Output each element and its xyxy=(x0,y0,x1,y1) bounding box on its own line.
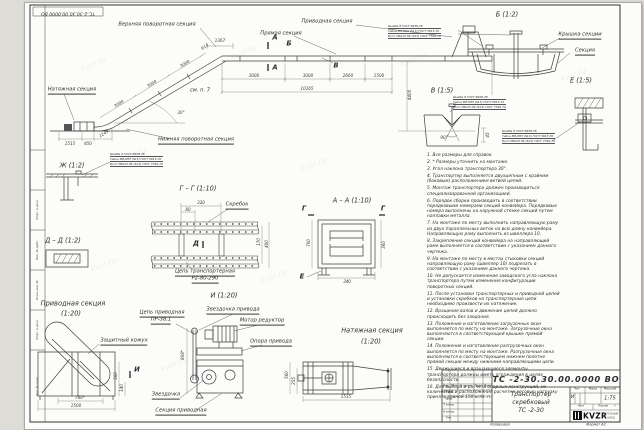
note-item: 7. На монтаже по месту выполнить направл… xyxy=(427,221,560,237)
label-straight-section: Прямая секция xyxy=(260,31,301,36)
note-item: 11. После установки транспортерных и при… xyxy=(427,292,560,308)
label-tension-section: Натяжная секция xyxy=(48,88,96,95)
view-b-title: Б (1:2) xyxy=(496,12,518,19)
view-gg-geometry xyxy=(151,222,259,268)
label-upper-turn-section: Верхняя поворотная секция xyxy=(118,22,195,27)
view-tension-geometry xyxy=(298,362,391,394)
dim-aa-340: 340 xyxy=(343,280,351,284)
view-v-title: В (1:5) xyxy=(431,88,453,95)
dim-incline5: 1367 xyxy=(215,39,225,43)
fastener-bolt: Болт М8х25.58 (S13) ГОСТ 7796-70 xyxy=(502,140,555,144)
view-i-geometry xyxy=(191,326,244,398)
binding-strip xyxy=(30,5,103,422)
sheet-header: Лист xyxy=(578,406,585,409)
strip-label-podp-data-2: Подп. и дата xyxy=(35,320,39,340)
fastener-callout-b: Шайба 8 ГОСТ 6958-78 Гайка М8-6Н5 (S13) … xyxy=(388,25,441,40)
sign-prov: Пров. xyxy=(445,398,453,401)
kvzr-logo-sub1: КОТЕЛЬНЫЙ xyxy=(604,413,618,416)
sheets-value: 1 xyxy=(614,406,616,409)
label-scraper: Скребок xyxy=(226,203,249,210)
dim-tension-560: 560 xyxy=(285,371,289,379)
detail-marker-i: И xyxy=(134,367,140,374)
dim-left2: 850 xyxy=(84,142,92,146)
scale-value: 1:75 xyxy=(604,396,616,401)
dim-i-808: 808* xyxy=(181,350,185,360)
view-dd-title: Д – Д (1:2) xyxy=(45,238,81,245)
note-item: 14. Положение и изготовление разгрузочны… xyxy=(427,344,560,365)
strip-label-vzam-inv: Взам. инв. № xyxy=(35,280,39,300)
note-item: 3. Угол наклона транспортера 30°. xyxy=(427,167,560,172)
dim-h4: 1500 xyxy=(374,74,384,78)
dim-drive-780: 780* xyxy=(75,396,85,400)
dim-h3: 2660 xyxy=(343,74,353,78)
rev-col-data: Дата xyxy=(484,386,491,389)
section-marker-a-top: А xyxy=(272,35,277,42)
dim-gg-170: 170 xyxy=(257,238,261,246)
dim-total: 10165 xyxy=(300,87,313,91)
corner-doc-number: ТС-2-30.30.00.0000 ВО xyxy=(41,9,95,14)
label-sprocket: Звездочка xyxy=(152,393,180,400)
drawing-sheet-scan: kvzr.ru kvzr.ru kvzr.ru kvzr.ru kvzr.ru … xyxy=(0,0,644,430)
rev-col-podp: Подп. xyxy=(475,386,483,389)
dim-h1: 3000 xyxy=(249,74,259,78)
dim-drive-1500: 1500 xyxy=(71,404,81,408)
view-gg-title: Г – Г (1:10) xyxy=(180,186,217,193)
label-motor-reducer: Мотор редуктор xyxy=(240,319,285,326)
dim-gg-320: 320 xyxy=(197,201,205,205)
note-item: 9. На монтаже по месту в местах стыковки… xyxy=(427,257,560,273)
dim-drive-560: 560 xyxy=(114,372,118,380)
lit-value: И xyxy=(571,396,574,401)
note-item: 2. * Размеры уточнить на монтаже. xyxy=(427,160,560,165)
dim-v-thickness: 45 xyxy=(486,132,490,137)
sign-nkontr: Н.контр. xyxy=(443,411,455,414)
strip-label-inv-podl: Инв. № подл. xyxy=(35,376,39,396)
dim-aa-700: 700 xyxy=(307,239,311,247)
sign-utv: Утв. xyxy=(446,418,451,421)
view-dd-geometry xyxy=(46,250,88,267)
rev-col-izm: Изм. xyxy=(443,386,449,389)
strip-label-inv-dubl: Инв. № дубл. xyxy=(35,240,39,260)
doc-name-3: ТС -2-30 xyxy=(518,408,544,414)
note-item: 13. Положение и изготовление загрузочных… xyxy=(427,322,560,343)
note-item: 12. Вращение валов и движение цепей долж… xyxy=(427,309,560,320)
dim-gg-400: 400 xyxy=(265,240,269,248)
scale-header: Масштаб xyxy=(604,389,616,392)
label-drive-chain-2: ПР-38,1 xyxy=(151,318,171,325)
fastener-callout-v: Шайба 8 ГОСТ 6958-78 Гайка М8-6Н5 (S13) … xyxy=(453,96,506,111)
label-conveyor-chain-2: Р2-80-290 xyxy=(192,277,219,284)
copied-label: Копировал xyxy=(490,423,509,426)
sheets-header: Листов xyxy=(598,406,608,409)
dimension-lines xyxy=(38,43,492,411)
doc-name-2: скребковый xyxy=(512,400,550,406)
fastener-callout-zh: Шайба 8 ГОСТ 6958-78 Гайка М8-6Н5 (S13) … xyxy=(110,153,163,168)
doc-number: ТС -2-30.30.00.0000 ВО xyxy=(493,374,620,382)
view-b-geometry xyxy=(468,31,564,79)
note-item: 8. Закрепление секций конвейера на напра… xyxy=(427,239,560,255)
view-drive-scale: (1:20) xyxy=(61,311,81,318)
view-aa-title: А – А (1:10) xyxy=(333,198,372,205)
kvzr-logo-icon xyxy=(573,411,582,420)
view-aa-geometry xyxy=(318,220,375,275)
view-drive-geometry xyxy=(38,322,115,400)
note-item: 10. Не допускается изменение заводского … xyxy=(427,274,560,290)
dim-angle: 30° xyxy=(177,111,184,115)
label-lower-turn-section: Нижняя поворотная секция xyxy=(158,138,234,145)
dim-tension-255: 255 xyxy=(292,377,296,385)
dim-aa-360: 360 xyxy=(382,241,386,249)
note-item: 5. Монтаж транспортера должен производит… xyxy=(427,186,560,197)
doc-name-1: Транспортер xyxy=(511,392,552,398)
fastener-callout-e: Шайба 8 ГОСТ 6958-78 Гайка М8-6Н5 (S13) … xyxy=(502,130,555,145)
label-section-cover: Крышка секции xyxy=(558,33,601,40)
tension-block xyxy=(64,124,72,131)
label-drive-support: Опора привода xyxy=(250,340,292,347)
label-drive-section-part: Секция приводная xyxy=(155,409,206,416)
note-item: 1. Все размеры для справок. xyxy=(427,153,560,158)
label-protective-cover: Защитный кожух xyxy=(100,339,147,346)
cut-marker-g-left: Г xyxy=(302,206,306,213)
dim-h2: 3000 xyxy=(303,74,313,78)
sign-razrab: Разраб. xyxy=(444,392,454,395)
detail-marker-e: Е xyxy=(300,274,305,281)
view-e-title: Е (1:5) xyxy=(570,78,592,85)
note-item: 4. Транспортер выполняется двухцепным с … xyxy=(427,174,560,185)
detail-marker-d: Д xyxy=(193,241,199,248)
fastener-bolt: Болт М8х25.58 (S13) ГОСТ 7796-70 xyxy=(388,35,441,39)
view-zh-geometry xyxy=(46,171,98,200)
view-e-geometry xyxy=(575,98,603,150)
view-i-title: И (1:20) xyxy=(211,293,238,300)
strip-label-podp-data-1: Подп. и дата xyxy=(35,200,39,220)
cut-marker-g-right: Г xyxy=(381,206,385,213)
sign-tkontr: Т.контр. xyxy=(443,405,454,408)
fastener-bolt: Болт М8х25.58 (S13) ГОСТ 7796-70 xyxy=(453,106,506,110)
view-drive-title: Приводная секция xyxy=(41,301,106,308)
section-marker-a-bottom: А xyxy=(272,65,277,72)
dim-left1: 1515 xyxy=(65,142,75,146)
dim-drive-140: 140 xyxy=(120,384,124,392)
view-tension-title: Натяжная секция xyxy=(341,328,403,335)
label-see-note: см. п. 7 xyxy=(190,88,210,93)
label-section: Секция xyxy=(575,49,595,56)
mass-header: Масса xyxy=(589,389,597,392)
kvzr-logo-sub2: ЗАВОД xyxy=(607,417,615,420)
detail-marker-b: Б xyxy=(286,41,291,48)
technical-requirements: 1. Все размеры для справок. 2. * Размеры… xyxy=(427,153,560,402)
label-drive-section: Приводная секция xyxy=(302,19,353,24)
view-zh-title: Ж (1:2) xyxy=(60,163,85,170)
dim-tension-1515: 1515 xyxy=(341,395,351,399)
dim-gg-80: 80 xyxy=(185,208,190,212)
note-item: 6. Порядок сборки производить в соответс… xyxy=(427,199,560,220)
rev-col-list: Лист xyxy=(451,386,458,389)
label-drive-sprocket: Звездочка привода xyxy=(206,308,259,315)
format-label: Формат А2 xyxy=(586,423,605,426)
view-tension-scale: (1:20) xyxy=(361,339,381,346)
fastener-bolt: Болт М8х25.58 (S13) ГОСТ 7796-70 xyxy=(110,163,163,167)
dim-height: 4400 xyxy=(408,90,412,100)
rev-col-ndoc: № докум. xyxy=(460,386,473,389)
detail-marker-v: В xyxy=(333,63,338,70)
lit-header: Лит. xyxy=(574,389,580,392)
dim-v-angle: 90° xyxy=(440,136,447,140)
